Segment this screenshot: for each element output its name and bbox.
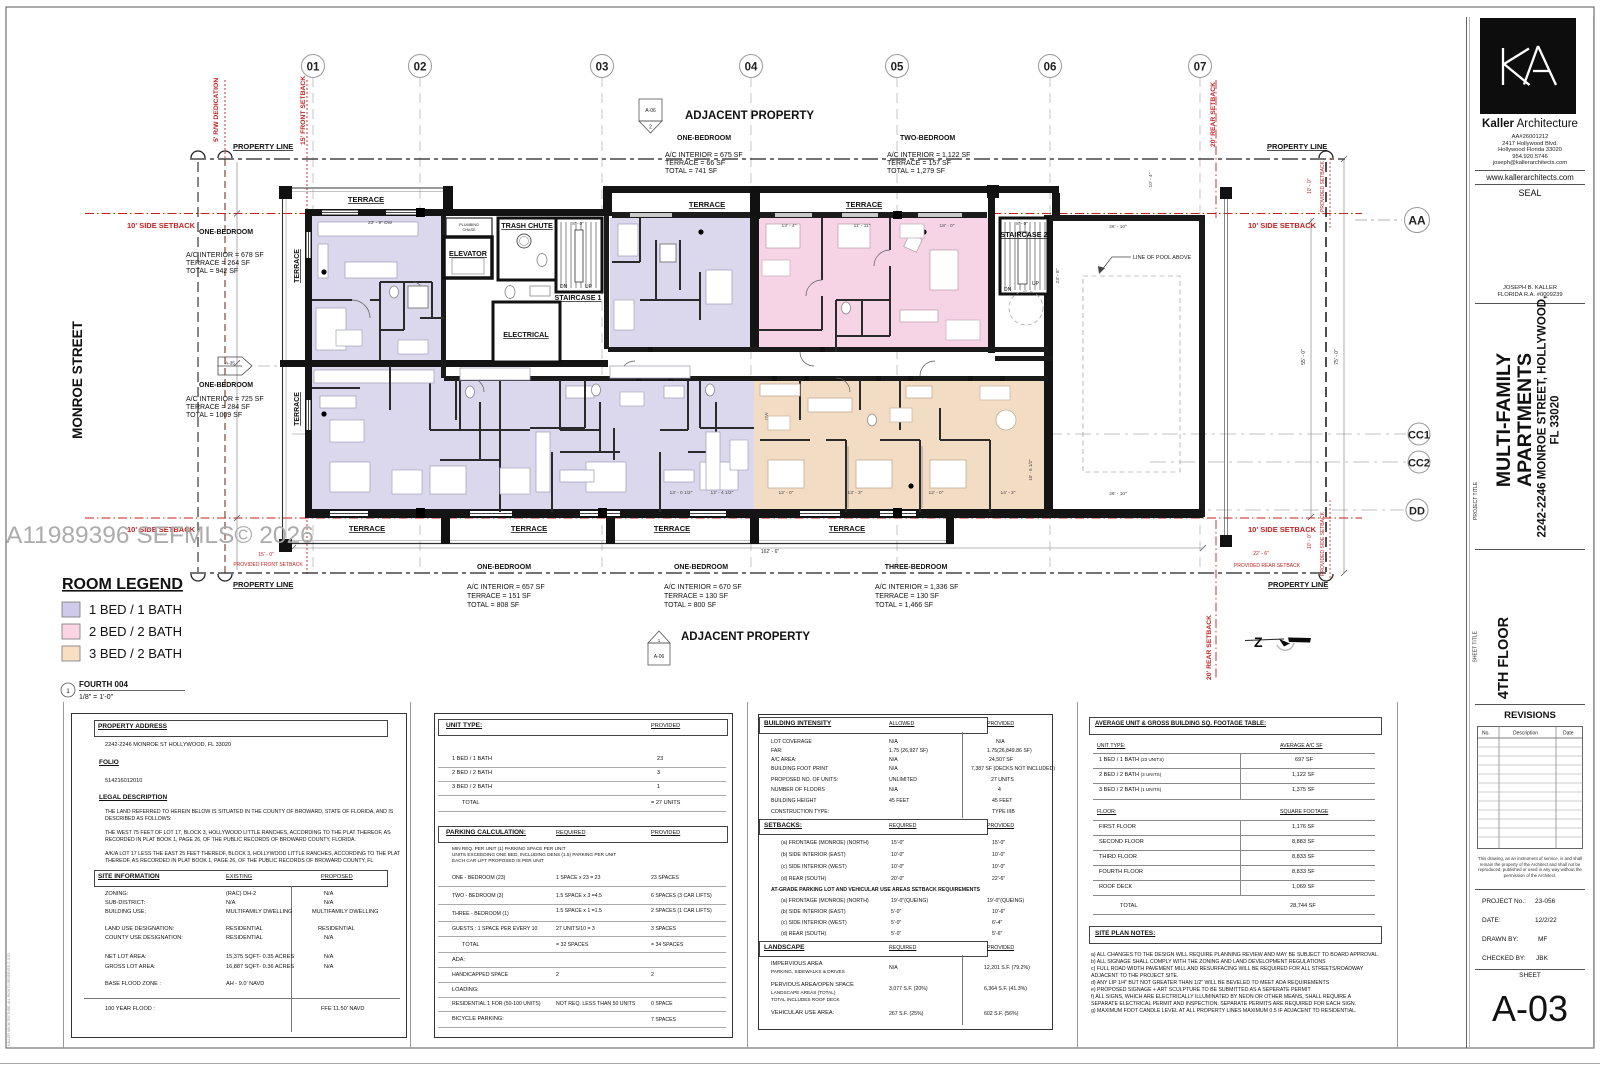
svg-text:Date: Date <box>1563 731 1574 737</box>
svg-text:PROPERTY LINE: PROPERTY LINE <box>1267 142 1327 151</box>
svg-text:ONE-BEDROOM: ONE-BEDROOM <box>674 564 728 571</box>
svg-text:A/C INTERIOR = 1,122 SF: A/C INTERIOR = 1,122 SF <box>887 152 970 159</box>
svg-text:10' - 0": 10' - 0" <box>1307 533 1313 549</box>
svg-text:162' - 6": 162' - 6" <box>761 549 780 555</box>
svg-text:A/C INTERIOR = 670 SF: A/C INTERIOR = 670 SF <box>664 584 742 591</box>
svg-text:TERRACE: TERRACE <box>294 392 301 426</box>
svg-text:TERRACE: TERRACE <box>689 200 725 209</box>
svg-text:TERRACE = 284 SF: TERRACE = 284 SF <box>186 404 250 411</box>
svg-text:5' R/W DEDICATION: 5' R/W DEDICATION <box>213 78 220 142</box>
svg-text:CHASE: CHASE <box>462 228 476 232</box>
svg-text:05: 05 <box>891 62 904 74</box>
svg-text:1: 1 <box>66 688 70 695</box>
svg-text:22' - 6": 22' - 6" <box>1253 551 1269 557</box>
svg-text:06: 06 <box>1044 62 1057 74</box>
svg-text:15' - 0": 15' - 0" <box>258 552 274 558</box>
svg-text:1: 1 <box>658 638 661 643</box>
svg-text:TERRACE: TERRACE <box>654 524 690 533</box>
svg-text:23' - 9" DW: 23' - 9" DW <box>368 220 393 226</box>
svg-text:55' - 0": 55' - 0" <box>1301 349 1307 365</box>
svg-text:03: 03 <box>596 62 609 74</box>
svg-text:10' SIDE SETBACK: 10' SIDE SETBACK <box>127 221 196 230</box>
svg-text:TERRACE: TERRACE <box>511 524 547 533</box>
svg-text:UP: UP <box>1032 281 1040 287</box>
svg-text:12' - 4 1/2": 12' - 4 1/2" <box>711 490 734 496</box>
svg-text:AA: AA <box>1408 214 1426 228</box>
svg-text:CC1: CC1 <box>1408 430 1430 442</box>
svg-text:STAIRCASE 2: STAIRCASE 2 <box>1001 230 1048 239</box>
svg-text:ONE-BEDROOM: ONE-BEDROOM <box>477 564 531 571</box>
svg-text:PROVIDED REAR SETBACK: PROVIDED REAR SETBACK <box>1234 563 1301 569</box>
svg-text:01: 01 <box>307 62 320 74</box>
svg-text:TERRACE: TERRACE <box>829 524 865 533</box>
svg-text:ONE-BEDROOM: ONE-BEDROOM <box>199 382 253 389</box>
svg-text:TERRACE = 264 SF: TERRACE = 264 SF <box>186 260 250 267</box>
svg-text:TERRACE: TERRACE <box>348 195 384 204</box>
svg-text:20' REAR SETBACK: 20' REAR SETBACK <box>1206 615 1213 680</box>
svg-text:TOTAL = 741 SF: TOTAL = 741 SF <box>665 168 717 175</box>
svg-text:8' - 0": 8' - 0" <box>572 221 584 226</box>
svg-text:13' - 0 1/2": 13' - 0 1/2" <box>670 490 693 496</box>
svg-text:04: 04 <box>745 62 758 74</box>
svg-text:26' - 10": 26' - 10" <box>1109 491 1127 497</box>
svg-text:13' - 4": 13' - 4" <box>782 223 797 229</box>
svg-text:TERRACE = 66 SF: TERRACE = 66 SF <box>665 160 725 167</box>
svg-text:TERRACE = 130 SF: TERRACE = 130 SF <box>664 593 728 600</box>
svg-text:18' - 0": 18' - 0" <box>940 223 955 229</box>
svg-text:A/C INTERIOR = 725 SF: A/C INTERIOR = 725 SF <box>186 396 264 403</box>
svg-text:12' - 0": 12' - 0" <box>929 490 944 496</box>
svg-text:23' - 8": 23' - 8" <box>1055 268 1061 283</box>
svg-text:20' REAR SETBACK: 20' REAR SETBACK <box>1210 82 1217 147</box>
svg-text:Description: Description <box>1513 731 1538 737</box>
svg-text:TOTAL = 1,279 SF: TOTAL = 1,279 SF <box>887 168 945 175</box>
svg-text:14' - 3": 14' - 3" <box>1001 490 1016 496</box>
svg-text:UP: UP <box>585 284 593 290</box>
svg-text:10' SIDE SETBACK: 10' SIDE SETBACK <box>1248 525 1317 534</box>
svg-text:TOTAL = 800 SF: TOTAL = 800 SF <box>664 602 716 609</box>
svg-text:PROPERTY LINE: PROPERTY LINE <box>233 580 293 589</box>
svg-text:ELEVATOR: ELEVATOR <box>449 249 488 258</box>
svg-text:ROOM LEGEND: ROOM LEGEND <box>62 576 183 593</box>
svg-text:PROVIDED FRONT SETBACK: PROVIDED FRONT SETBACK <box>233 562 303 568</box>
svg-text:A/C INTERIOR = 1,336 SF: A/C INTERIOR = 1,336 SF <box>875 584 958 591</box>
svg-text:ADJACENT PROPERTY: ADJACENT PROPERTY <box>685 110 814 122</box>
svg-text:10' - 4": 10' - 4" <box>1148 172 1154 187</box>
svg-text:PROVIDED SETBACK: PROVIDED SETBACK <box>1320 160 1326 212</box>
svg-text:THREE-BEDROOM: THREE-BEDROOM <box>885 564 948 571</box>
svg-text:2 BED / 2 BATH: 2 BED / 2 BATH <box>89 624 182 639</box>
svg-text:TWO-BEDROOM: TWO-BEDROOM <box>900 135 955 142</box>
svg-text:KALLER ARCHITECTURE, ALL RIGHT: KALLER ARCHITECTURE, ALL RIGHTS RESERVED… <box>7 953 11 1046</box>
svg-text:TERRACE = 130 SF: TERRACE = 130 SF <box>875 593 939 600</box>
svg-text:TERRACE = 157 SF: TERRACE = 157 SF <box>887 160 951 167</box>
svg-text:13' - 3": 13' - 3" <box>848 490 863 496</box>
svg-text:A-06: A-06 <box>654 654 665 660</box>
svg-text:10' - 0": 10' - 0" <box>1307 178 1313 194</box>
svg-text:Z: Z <box>1254 634 1263 650</box>
svg-text:TERRACE: TERRACE <box>294 249 301 283</box>
svg-text:8' - 0": 8' - 0" <box>1016 221 1028 226</box>
svg-text:DD: DD <box>1409 506 1425 518</box>
svg-text:MONROE STREET: MONROE STREET <box>70 320 85 439</box>
svg-text:TERRACE: TERRACE <box>349 524 385 533</box>
svg-text:TOTAL = 942 SF: TOTAL = 942 SF <box>186 268 238 275</box>
svg-text:A-35: A-35 <box>225 361 235 366</box>
svg-text:CC2: CC2 <box>1408 458 1430 470</box>
svg-text:TRASH CHUTE: TRASH CHUTE <box>501 221 553 230</box>
svg-text:TOTAL = 1,466 SF: TOTAL = 1,466 SF <box>875 602 933 609</box>
svg-text:TERRACE: TERRACE <box>846 200 882 209</box>
svg-text:75' - 0": 75' - 0" <box>1334 349 1340 365</box>
svg-text:DN: DN <box>560 284 568 290</box>
svg-text:A11989396 SEFMLS© 2026: A11989396 SEFMLS© 2026 <box>6 522 314 549</box>
svg-text:1/8" = 1'-0": 1/8" = 1'-0" <box>79 694 114 701</box>
svg-text:PROPERTY LINE: PROPERTY LINE <box>1268 580 1328 589</box>
svg-text:ELECTRICAL: ELECTRICAL <box>503 330 549 339</box>
svg-text:A/C INTERIOR = 675 SF: A/C INTERIOR = 675 SF <box>665 152 743 159</box>
svg-text:A-06: A-06 <box>645 108 656 114</box>
svg-text:DN: DN <box>1004 287 1012 293</box>
svg-text:ONE-BEDROOM: ONE-BEDROOM <box>199 229 253 236</box>
svg-text:A/C INTERIOR = 657 SF: A/C INTERIOR = 657 SF <box>467 584 545 591</box>
svg-text:ONE-BEDROOM: ONE-BEDROOM <box>677 135 731 142</box>
svg-text:ADJACENT PROPERTY: ADJACENT PROPERTY <box>681 631 810 643</box>
svg-text:15' FRONT SETBACK: 15' FRONT SETBACK <box>300 76 307 145</box>
svg-text:PROVIDED SIDE SETBACK: PROVIDED SIDE SETBACK <box>1320 511 1326 576</box>
svg-text:11' - 11": 11' - 11" <box>854 223 871 229</box>
svg-text:26' - 10": 26' - 10" <box>1109 224 1127 230</box>
svg-text:10' - 6 1/2": 10' - 6 1/2" <box>1028 459 1033 481</box>
svg-text:PROPERTY LINE: PROPERTY LINE <box>233 142 293 151</box>
svg-text:10' SIDE SETBACK: 10' SIDE SETBACK <box>1248 221 1317 230</box>
svg-text:FOURTH 004: FOURTH 004 <box>79 680 128 689</box>
svg-text:TOTAL = 808 SF: TOTAL = 808 SF <box>467 602 519 609</box>
svg-text:02: 02 <box>414 62 427 74</box>
svg-text:3 BED / 2 BATH: 3 BED / 2 BATH <box>89 646 182 661</box>
svg-text:LINE OF POOL ABOVE: LINE OF POOL ABOVE <box>1133 255 1192 261</box>
svg-text:07: 07 <box>1194 62 1207 74</box>
svg-text:No.: No. <box>1482 731 1490 737</box>
svg-text:1 BED / 1 BATH: 1 BED / 1 BATH <box>89 602 182 617</box>
svg-text:TOTAL = 1009 SF: TOTAL = 1009 SF <box>186 412 242 419</box>
svg-text:2: 2 <box>649 125 652 131</box>
svg-text:STAIRCASE 1: STAIRCASE 1 <box>555 293 602 302</box>
svg-text:A/C INTERIOR = 678 SF: A/C INTERIOR = 678 SF <box>186 252 264 259</box>
svg-text:PLUMBING: PLUMBING <box>459 223 479 227</box>
svg-text:12' - 0": 12' - 0" <box>779 490 794 496</box>
svg-text:TERRACE = 151 SF: TERRACE = 151 SF <box>467 593 531 600</box>
